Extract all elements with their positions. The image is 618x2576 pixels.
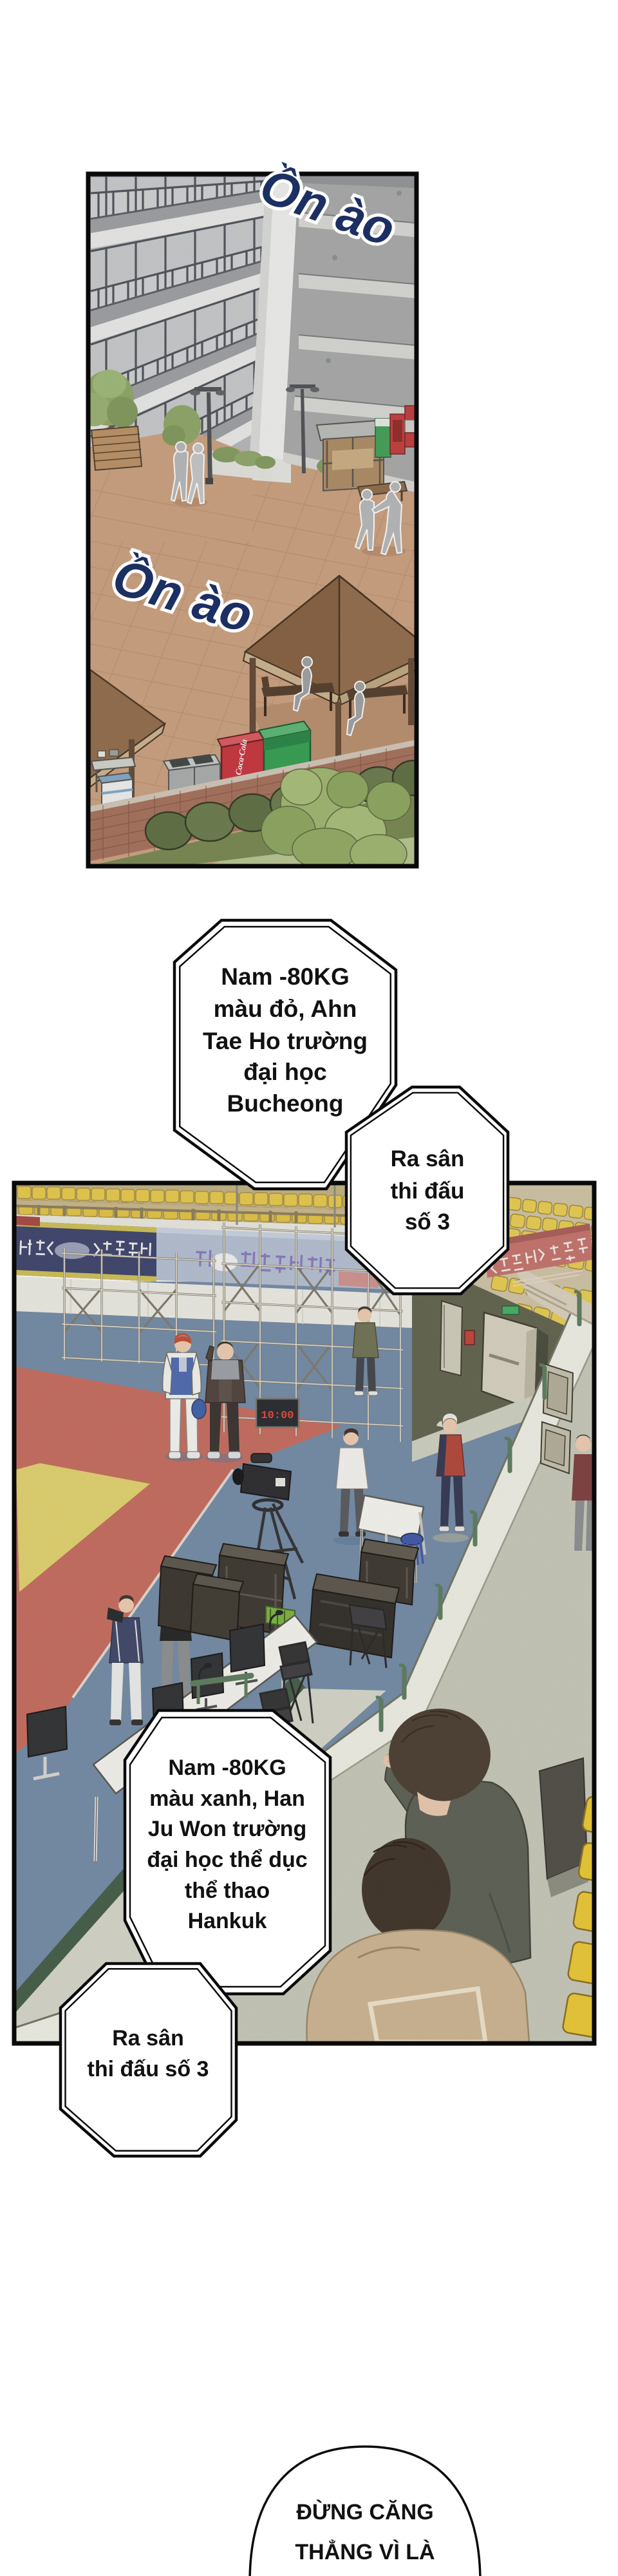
svg-text:đại học thể dục: đại học thể dục xyxy=(147,1848,307,1872)
svg-text:Nam -80KG: Nam -80KG xyxy=(221,963,349,990)
svg-text:Ra sân: Ra sân xyxy=(112,2026,184,2050)
svg-text:Bucheong: Bucheong xyxy=(227,1090,344,1117)
svg-text:Hankuk: Hankuk xyxy=(188,1909,267,1933)
svg-text:Tae Ho trường: Tae Ho trường xyxy=(203,1028,368,1054)
svg-text:màu đỏ, Ahn: màu đỏ, Ahn xyxy=(214,996,357,1022)
svg-text:thi đấu: thi đấu xyxy=(391,1179,465,1204)
svg-text:thể thao: thể thao xyxy=(185,1879,270,1903)
svg-text:Nam -80KG: Nam -80KG xyxy=(168,1756,286,1780)
svg-text:ĐỪNG CĂNG: ĐỪNG CĂNG xyxy=(296,2500,433,2524)
svg-text:màu xanh, Han: màu xanh, Han xyxy=(149,1786,305,1811)
svg-text:đại học: đại học xyxy=(243,1059,327,1085)
svg-text:thi đấu số 3: thi đấu số 3 xyxy=(88,2057,209,2081)
svg-text:THẲNG VÌ LÀ: THẲNG VÌ LÀ xyxy=(295,2540,435,2564)
svg-text:Ra sân: Ra sân xyxy=(391,1146,465,1171)
svg-text:Ju Won trường: Ju Won trường xyxy=(148,1817,306,1841)
svg-text:số 3: số 3 xyxy=(405,1209,450,1235)
